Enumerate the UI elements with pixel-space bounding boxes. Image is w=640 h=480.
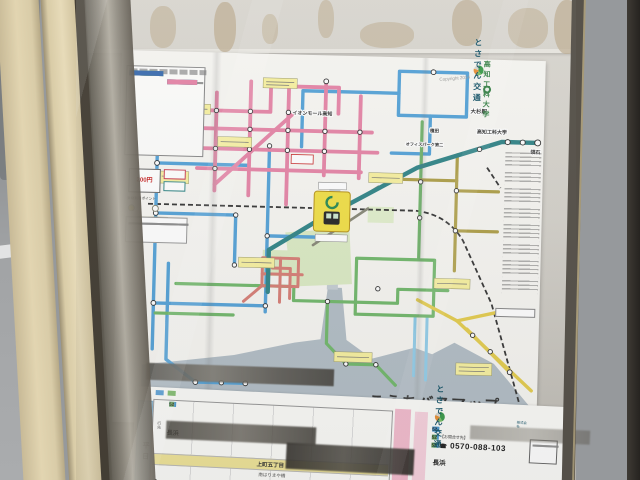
legend-right-column: [165, 77, 203, 148]
frame-edge-right: [627, 0, 640, 480]
tape-stain: [150, 6, 176, 48]
fare-mini-box-2: [163, 181, 185, 192]
tape-stain: [262, 14, 278, 44]
tosaden-logo-text: とさでん交通: [473, 37, 483, 103]
fare-mini-box-1: [164, 169, 186, 180]
phone-icon: ☎: [439, 444, 447, 450]
route-chip: [156, 390, 164, 395]
notes-mini-box: [495, 308, 535, 318]
phone-number: ☎ 0570-088-103: [439, 441, 506, 453]
tape-stain: [214, 2, 236, 52]
tape-stain: [508, 8, 548, 48]
red-terminal-box: [291, 154, 313, 164]
notes-paragraph-gaps: [502, 152, 542, 295]
destination-label-2: 長浜: [432, 457, 445, 468]
bus-stop-map-photo: 大杉駅 イオンモール高知 高知工科大学 領石 オフィスパーク第二 植田 200円: [0, 0, 640, 480]
legend-swatch-dark-blue: [129, 70, 163, 76]
route-chip: [168, 391, 176, 396]
tape-stain: [360, 22, 414, 48]
station-label-kochi-tech: 高知工科大学: [477, 128, 507, 136]
station-label-aeon-mall: イオンモール高知: [292, 109, 332, 117]
tape-stain: [318, 0, 334, 38]
direction-label: 行先: [156, 421, 162, 429]
